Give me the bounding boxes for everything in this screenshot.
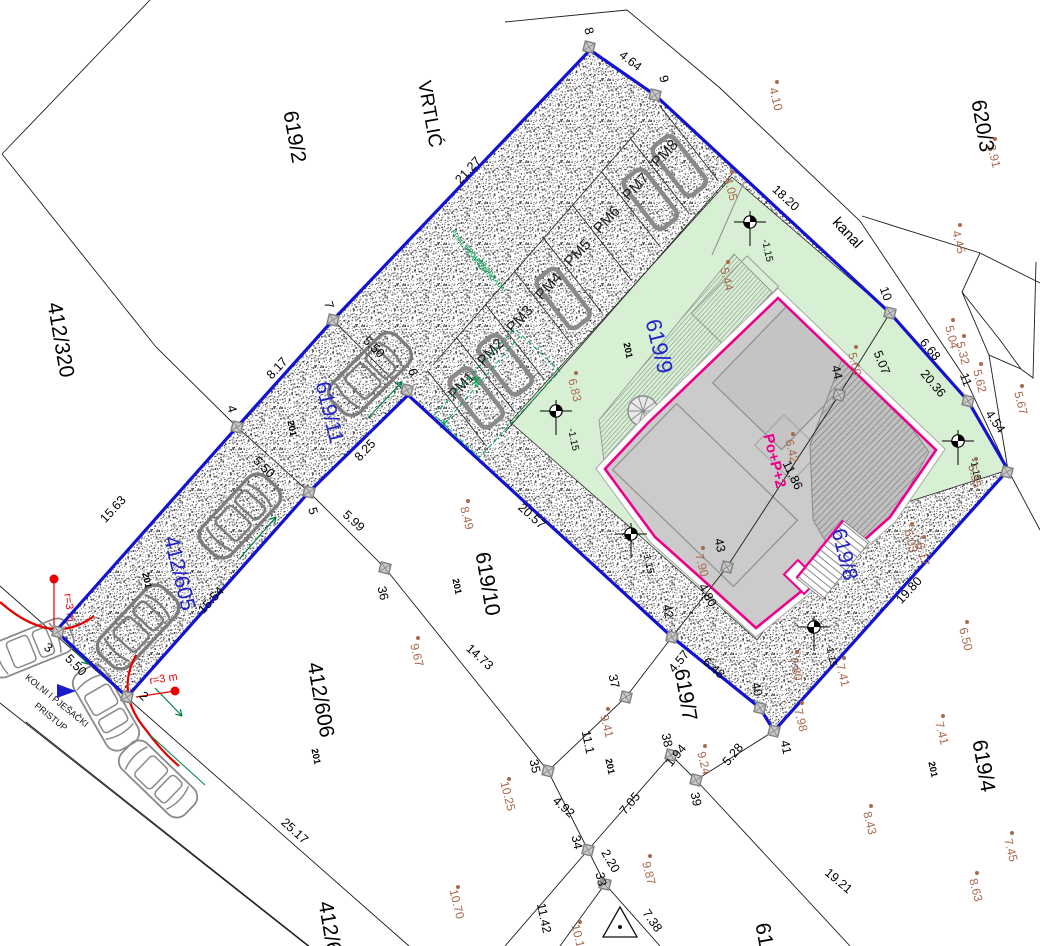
- svg-text:42: 42: [660, 603, 677, 620]
- svg-text:41: 41: [778, 739, 795, 756]
- svg-text:43: 43: [712, 537, 729, 554]
- svg-text:36: 36: [375, 585, 392, 602]
- svg-text:40: 40: [749, 681, 766, 698]
- svg-text:38: 38: [659, 732, 676, 749]
- svg-text:33: 33: [593, 871, 610, 888]
- svg-text:39: 39: [688, 791, 705, 808]
- svg-text:34: 34: [569, 834, 586, 851]
- svg-text:44: 44: [829, 364, 846, 381]
- svg-text:35: 35: [527, 758, 544, 775]
- svg-text:37: 37: [606, 673, 623, 690]
